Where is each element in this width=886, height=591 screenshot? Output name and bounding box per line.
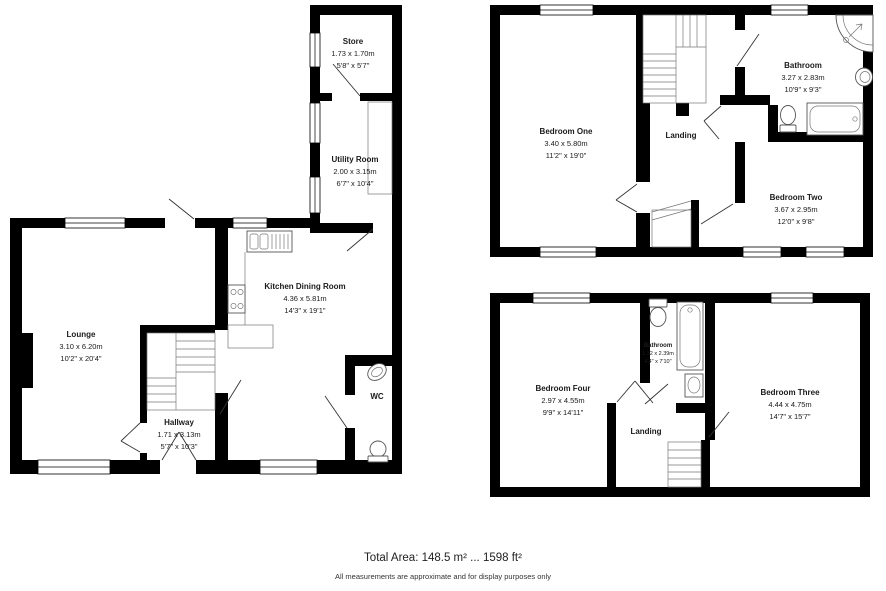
bathroom-label: Bathroom — [784, 61, 822, 70]
understairs-cupboard-icon — [652, 201, 691, 247]
floorplan-page: { "floors": { "ground": { "rooms": { "st… — [0, 0, 886, 591]
kitchen-imperial: 14'3" x 19'1" — [284, 306, 325, 315]
store-imperial: 5'8" x 5'7" — [337, 61, 370, 70]
bedroom-four-metric: 2.97 x 4.55m — [541, 396, 584, 405]
store-label: Store — [343, 37, 364, 46]
bathtub-icon — [807, 103, 863, 135]
second-bathtub-icon — [677, 302, 703, 370]
bedroom-four-imperial: 9'9" x 14'11" — [543, 408, 584, 417]
hallway-metric: 1.71 x 3.13m — [157, 430, 200, 439]
bedroom-two-label: Bedroom Two — [770, 193, 823, 202]
first-landing-label: Landing — [665, 131, 696, 140]
wc-label: WC — [370, 392, 384, 401]
second-stairs-icon — [668, 442, 701, 487]
utility-metric: 2.00 x 3.15m — [333, 167, 376, 176]
second-landing-label: Landing — [630, 427, 661, 436]
bathroom-metric: 3.27 x 2.83m — [781, 73, 824, 82]
second-toilet-icon — [649, 299, 667, 327]
shower-icon — [836, 15, 873, 52]
second-floor-plan: Bedroom Four 2.97 x 4.55m 9'9" x 14'11" … — [443, 280, 886, 510]
bedroom-three-label: Bedroom Three — [760, 388, 820, 397]
bedroom-three-imperial: 14'7" x 15'7" — [769, 412, 810, 421]
total-area-text: Total Area: 148.5 m² ... 1598 ft² — [0, 552, 886, 564]
bedroom-two-metric: 3.67 x 2.95m — [774, 205, 817, 214]
bedroom-two-imperial: 12'0" x 9'8" — [778, 217, 815, 226]
kitchen-sink-icon — [247, 231, 292, 252]
stove-icon — [228, 285, 245, 313]
ground-stairs-icon — [147, 333, 215, 410]
second-bathroom-metric: 1.32 x 2.39m — [642, 351, 674, 357]
kitchen-metric: 4.36 x 5.81m — [283, 294, 326, 303]
bedroom-one-imperial: 11'2" x 19'0" — [546, 151, 587, 160]
bedroom-one-label: Bedroom One — [540, 127, 593, 136]
lounge-imperial: 10'2" x 20'4" — [60, 354, 101, 363]
toilet-icon — [780, 106, 796, 133]
second-bathroom-imperial: 4'4" x 7'10" — [644, 359, 671, 365]
utility-label: Utility Room — [331, 155, 378, 164]
hallway-label: Hallway — [164, 418, 194, 427]
wc-toilet-icon — [368, 441, 388, 462]
ground-floor-plan: Store 1.73 x 1.70m 5'8" x 5'7" Utility R… — [0, 0, 443, 500]
first-stairs-icon — [643, 15, 706, 103]
lounge-metric: 3.10 x 6.20m — [59, 342, 102, 351]
first-floor-plan: Bedroom One 3.40 x 5.80m 11'2" x 19'0" L… — [443, 0, 886, 280]
bedroom-three-metric: 4.44 x 4.75m — [768, 400, 811, 409]
disclaimer-text: All measurements are approximate and for… — [0, 572, 886, 581]
second-bathroom-label: Bathroom — [644, 343, 672, 349]
lounge-label: Lounge — [67, 330, 96, 339]
hallway-imperial: 5'7" x 10'3" — [161, 442, 198, 451]
bedroom-four-label: Bedroom Four — [535, 384, 590, 393]
bathroom-imperial: 10'9" x 9'3" — [785, 85, 822, 94]
bedroom-one-metric: 3.40 x 5.80m — [544, 139, 587, 148]
second-sink-icon — [685, 374, 703, 397]
kitchen-label: Kitchen Dining Room — [264, 282, 345, 291]
store-metric: 1.73 x 1.70m — [331, 49, 374, 58]
utility-imperial: 6'7" x 10'4" — [337, 179, 374, 188]
bathroom-sink-icon — [856, 68, 873, 86]
